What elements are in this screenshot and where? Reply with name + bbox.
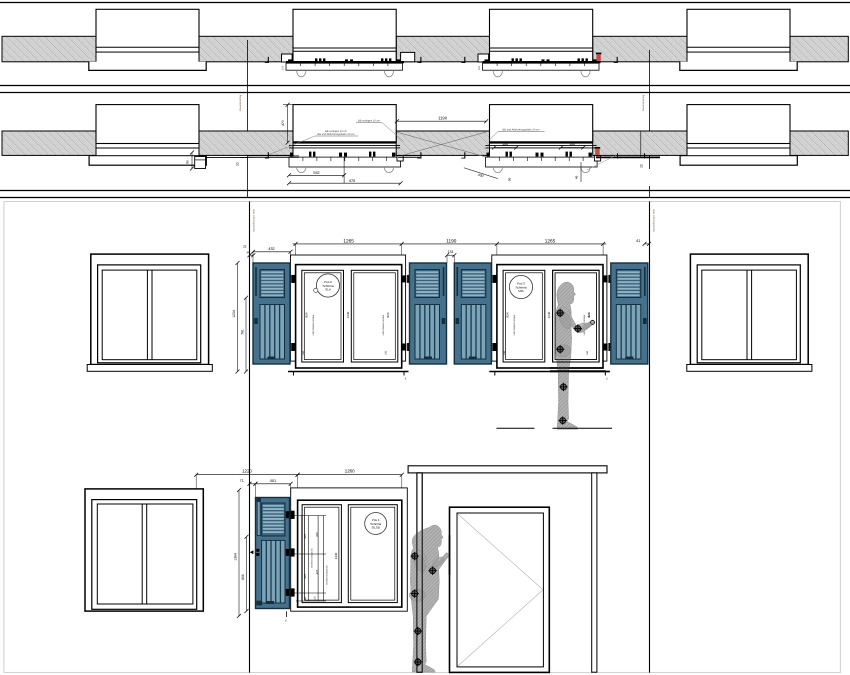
svg-text:48: 48	[247, 251, 251, 255]
svg-text:824: 824	[304, 312, 308, 317]
svg-text:150: 150	[503, 350, 506, 355]
svg-text:46: 46	[575, 176, 579, 180]
svg-text:1265: 1265	[343, 238, 354, 243]
svg-text:131: 131	[447, 250, 453, 254]
svg-text:Holz/Metall-Fenster: Holz/Metall-Fenster	[312, 314, 315, 335]
svg-text:41: 41	[636, 239, 640, 243]
svg-text:1190: 1190	[446, 238, 456, 243]
svg-text:SLA: SLA	[325, 288, 331, 292]
svg-text:432: 432	[268, 247, 274, 251]
svg-text:470: 470	[281, 120, 285, 126]
svg-text:1190: 1190	[438, 116, 448, 121]
svg-text:96: 96	[508, 178, 512, 182]
svg-text:150: 150	[302, 350, 305, 355]
svg-text:427: 427	[303, 573, 307, 578]
svg-text:824: 824	[506, 312, 510, 317]
svg-text:22: 22	[243, 245, 247, 249]
svg-text:71: 71	[240, 479, 244, 483]
svg-text:BB und Abdichtungsbahn 20 cm: BB und Abdichtungsbahn 20 cm	[318, 133, 355, 136]
svg-text:MIA: MIA	[518, 289, 523, 293]
svg-text:Maueranschlag: Maueranschlag	[239, 94, 242, 111]
svg-text:1260: 1260	[345, 468, 355, 473]
svg-text:1364: 1364	[233, 553, 237, 561]
svg-text:1234: 1234	[232, 310, 236, 318]
svg-text:100: 100	[569, 142, 575, 146]
svg-text:20: 20	[235, 162, 239, 166]
svg-text:470: 470	[349, 179, 355, 183]
svg-text:BB und Abdichtungsbahn 20 cm: BB und Abdichtungsbahn 20 cm	[503, 129, 540, 132]
svg-text:150: 150	[586, 350, 589, 355]
svg-text:562: 562	[313, 171, 319, 175]
svg-text:Insektenschutzrollo: Insektenschutzrollo	[310, 547, 313, 567]
svg-text:BB verlegen 10 cm: BB verlegen 10 cm	[358, 120, 380, 123]
svg-text:150: 150	[478, 65, 481, 70]
svg-text:85: 85	[186, 160, 190, 164]
svg-text:781: 781	[240, 329, 244, 335]
svg-text:470: 470	[315, 532, 319, 537]
svg-text:150: 150	[385, 350, 388, 355]
svg-text:Insektenschutzrollo: Insektenschutzrollo	[325, 564, 328, 584]
svg-text:115: 115	[313, 596, 316, 600]
svg-text:100: 100	[502, 142, 508, 146]
svg-text:20: 20	[640, 164, 644, 168]
svg-text:1220: 1220	[242, 468, 252, 473]
svg-text:401: 401	[270, 479, 276, 483]
svg-text:Maueröffnung lt. Arch.: Maueröffnung lt. Arch.	[253, 208, 256, 232]
svg-text:1240: 1240	[547, 311, 551, 318]
svg-text:866: 866	[241, 574, 245, 580]
svg-text:427: 427	[303, 533, 307, 538]
svg-text:Maueröffnung lt. Arch.: Maueröffnung lt. Arch.	[653, 208, 656, 232]
svg-text:1340: 1340	[334, 552, 338, 559]
svg-text:1240: 1240	[346, 311, 350, 318]
svg-text:824: 824	[386, 312, 390, 317]
svg-text:427: 427	[315, 569, 319, 574]
svg-text:Holz/Metall-Fenster: Holz/Metall-Fenster	[513, 314, 516, 335]
svg-text:824: 824	[587, 312, 591, 317]
svg-text:Holz/Metall-Fenster: Holz/Metall-Fenster	[382, 314, 385, 335]
svg-text:150: 150	[282, 65, 285, 70]
svg-text:GLSB: GLSB	[372, 526, 380, 530]
svg-text:1265: 1265	[545, 238, 556, 243]
svg-text:Maueranschlag: Maueranschlag	[642, 94, 645, 111]
